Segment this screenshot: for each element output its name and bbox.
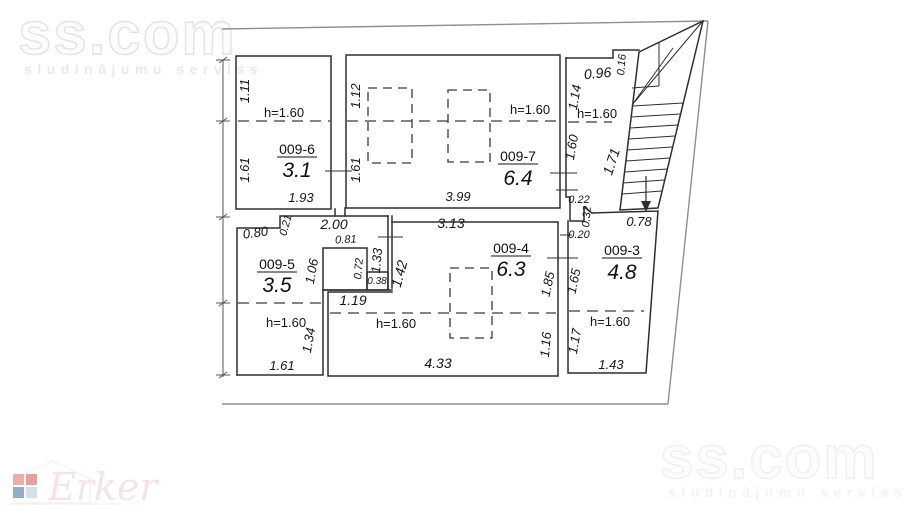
- logo-wordmark: Erker: [47, 465, 160, 509]
- dim-label: 1.34: [299, 326, 318, 354]
- room-code: 009-6: [279, 141, 315, 157]
- dim-label: 1.61: [237, 157, 252, 182]
- dim-label: 0.16: [615, 53, 629, 76]
- dim-label: 0.80: [242, 223, 270, 241]
- dim-label: 1.16: [537, 331, 554, 358]
- dim-label: 0.38: [367, 276, 387, 287]
- dim-label: 1.61: [269, 358, 294, 373]
- room-009-3: 009-3 4.8 1.65 h=1.60 1.17 1.43: [564, 242, 642, 372]
- dim-label: 1.61: [348, 157, 363, 182]
- dim-label: 0.20: [568, 229, 590, 241]
- dim-label: 1.43: [598, 357, 624, 372]
- roof-windows: [368, 88, 492, 338]
- logo-square-blue: [13, 487, 24, 498]
- dim-label: 0.32: [580, 206, 594, 228]
- dim-label: 1.60: [562, 133, 581, 161]
- room-area: 6.3: [496, 258, 526, 281]
- height-note: h=1.60: [266, 315, 306, 330]
- stair-down-arrow-icon: [641, 201, 651, 212]
- dim-label: 0.78: [626, 214, 652, 229]
- room-009-4: 009-4 6.3 1.85 h=1.60 1.16 4.33: [376, 240, 558, 371]
- watermark-brand: ss.com: [18, 0, 237, 67]
- dim-label: 3.99: [445, 189, 470, 204]
- room-009-7: 1.12 1.61 h=1.60 009-7 6.4 3.99: [348, 83, 550, 204]
- height-note: h=1.60: [577, 106, 617, 121]
- room-area: 6.4: [503, 167, 532, 190]
- dim-label: 2.00: [319, 216, 347, 232]
- dim-label: 0.96: [583, 64, 612, 82]
- dim-label: 1.85: [538, 269, 558, 298]
- dim-label: 1.11: [237, 79, 252, 103]
- dim-label: 1.65: [564, 266, 584, 295]
- watermark-tagline: sludinājumu serviss: [668, 484, 907, 500]
- middle-band-labels: 0.21 2.00 3.13 0.80 0.81 0.20: [242, 213, 591, 246]
- dim-label: 1.93: [288, 190, 314, 205]
- dim-label: 0.81: [335, 233, 357, 246]
- agency-logo: Erker: [10, 461, 160, 509]
- dim-label: 3.13: [437, 215, 464, 231]
- room-009-6: 1.11 1.61 h=1.60 009-6 3.1 1.93: [237, 79, 317, 205]
- watermark-bottom-right: ss.com sludinājumu serviss: [660, 424, 907, 500]
- height-note: h=1.60: [510, 102, 550, 117]
- room-area: 3.1: [282, 159, 311, 182]
- height-note: h=1.60: [590, 314, 630, 329]
- room-area: 4.8: [607, 261, 637, 284]
- room-area: 3.5: [262, 274, 292, 297]
- dim-label: 1.33: [368, 247, 385, 274]
- watermark-tagline: sludinājumu serviss: [24, 61, 263, 77]
- hallway-stairs-labels: 0.96 0.16 1.14 h=1.60 1.60 0.22 0.32 1.7…: [562, 53, 652, 229]
- logo-square-salmon: [26, 474, 37, 485]
- dim-label: 1.19: [339, 292, 366, 308]
- dim-label: 0.72: [352, 258, 366, 280]
- watermark-top-left: ss.com sludinājumu serviss: [18, 0, 263, 77]
- room-code: 009-3: [604, 242, 640, 258]
- watermark-brand: ss.com: [660, 424, 879, 491]
- dim-label: 0.22: [568, 194, 589, 206]
- dim-label: 1.17: [565, 327, 584, 355]
- dim-label: 1.06: [302, 257, 321, 285]
- floor-plan-canvas: ss.com sludinājumu serviss ss.com sludin…: [0, 0, 910, 511]
- dim-label: 1.71: [599, 146, 623, 177]
- height-note: h=1.60: [264, 105, 304, 120]
- logo-square-pink: [13, 474, 24, 485]
- dim-label: 1.12: [348, 83, 363, 109]
- room-code: 009-7: [500, 148, 536, 164]
- building-outline: [216, 21, 708, 404]
- height-note: h=1.60: [376, 316, 416, 331]
- dim-label: 4.33: [424, 355, 451, 371]
- room-code: 009-5: [259, 256, 295, 272]
- logo-square-lightblue: [26, 487, 37, 498]
- room-code: 009-4: [493, 240, 529, 256]
- floor-plan-image: ss.com sludinājumu serviss ss.com sludin…: [0, 0, 910, 511]
